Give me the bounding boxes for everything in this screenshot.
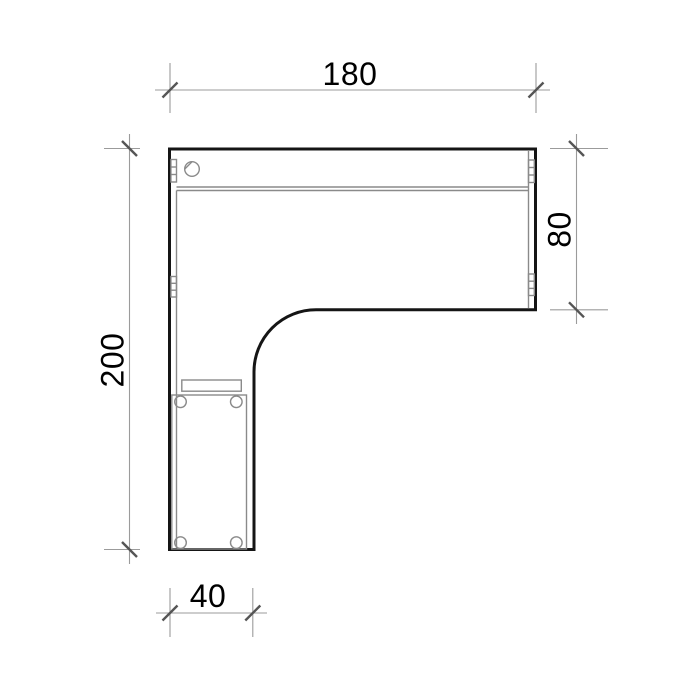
hinge-plate-right-top xyxy=(529,160,535,183)
dimension-label-bottom: 40 xyxy=(190,578,227,614)
desk-details xyxy=(171,151,534,549)
cable-grommet-icon xyxy=(185,162,200,177)
dimension-label-top: 180 xyxy=(323,56,378,92)
desk-outline xyxy=(170,149,536,550)
hinge-plate-left-bottom xyxy=(171,277,177,298)
technical-drawing-page: 180 80 200 40 xyxy=(0,0,700,700)
drawer-front xyxy=(182,380,242,391)
hinge-plate-left-top xyxy=(171,160,177,183)
pedestal-outline xyxy=(172,395,247,549)
caster-top-right xyxy=(231,396,243,408)
dimension-labels: 180 80 200 40 xyxy=(95,56,578,614)
dimension-label-right: 80 xyxy=(542,211,578,248)
desk xyxy=(170,149,536,550)
dimension-label-left: 200 xyxy=(95,333,131,388)
caster-bottom-right xyxy=(231,537,243,549)
hinge-plate-right-bottom xyxy=(529,274,535,296)
technical-drawing-canvas: 180 80 200 40 xyxy=(0,0,700,700)
